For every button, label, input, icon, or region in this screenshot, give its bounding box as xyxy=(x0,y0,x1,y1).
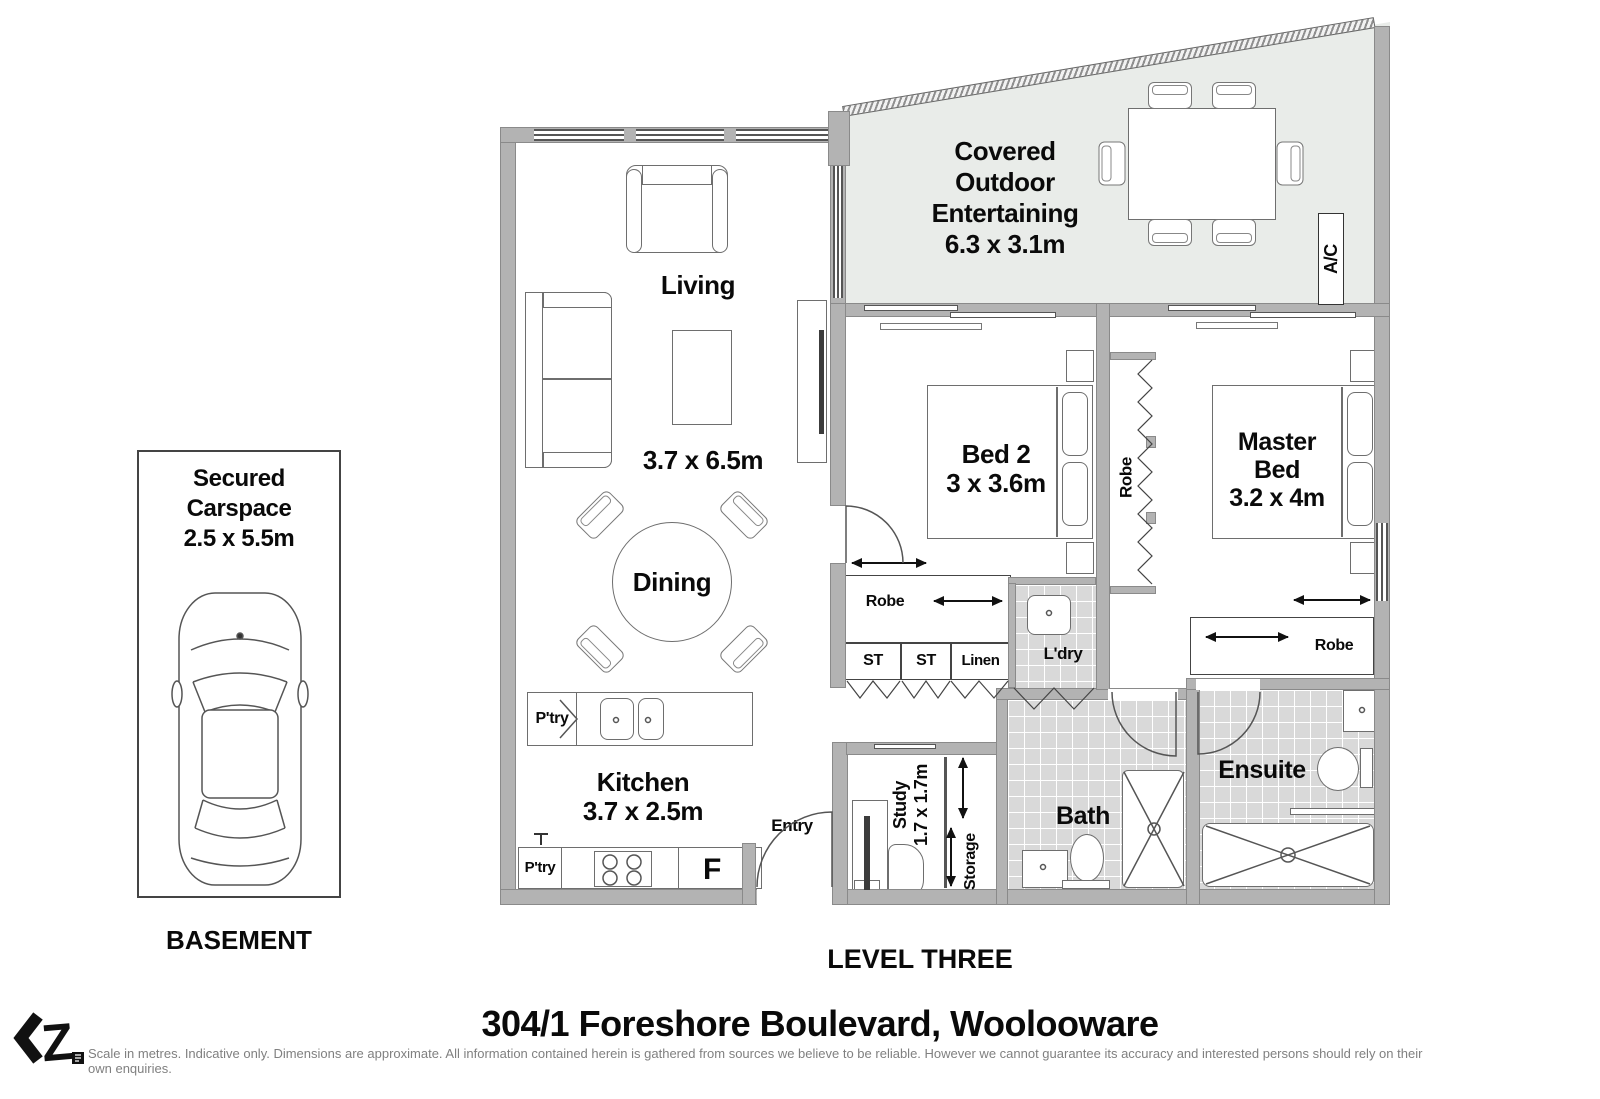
st-cell: ST xyxy=(901,643,951,680)
room-label-storage: Storage xyxy=(960,822,982,902)
bed2-sliding-door xyxy=(950,312,1056,318)
bedside-table xyxy=(1066,542,1094,574)
floorplan-page: { "page": { "address": "304/1 Foreshore … xyxy=(0,0,1600,1099)
car-top-view xyxy=(172,588,308,888)
fridge-cell: F xyxy=(678,847,746,889)
toilet-bowl xyxy=(1070,834,1104,882)
pantry-bottom-label: P'try xyxy=(519,860,561,877)
storage-arrow xyxy=(950,828,952,886)
outdoor-chair xyxy=(1148,219,1192,246)
st-cell: ST xyxy=(845,643,901,680)
window xyxy=(636,129,724,141)
car-mirror xyxy=(172,681,182,707)
room-label-outdoor: Covered Outdoor Entertaining 6.3 x 3.1m xyxy=(880,136,1130,260)
bathtub xyxy=(1202,823,1374,887)
master-dims: 3.2 x 4m xyxy=(1207,484,1347,512)
robe-hanging-rail xyxy=(1138,360,1152,584)
wall-corner-block xyxy=(828,111,850,166)
monitor xyxy=(864,816,870,890)
disclaimer-text: Scale in metres. Indicative only. Dimens… xyxy=(88,1046,1438,1076)
wall-living-right-mid xyxy=(830,303,846,506)
wall-left-exterior xyxy=(500,127,516,905)
pillow xyxy=(1347,462,1373,526)
outdoor-chair xyxy=(1212,82,1256,109)
laundry-sink xyxy=(1027,595,1071,635)
wall-ensuite-left xyxy=(1186,678,1200,905)
logo-letter: Z xyxy=(39,1013,76,1074)
master-window xyxy=(1376,523,1388,601)
outdoor-chair xyxy=(1277,142,1304,186)
master-line2: Bed xyxy=(1207,456,1347,484)
study-name: Study xyxy=(890,745,911,865)
study-dims: 1.7 x 1.7m xyxy=(911,745,932,865)
dining-chair xyxy=(574,489,626,541)
wall-niche-bottom-stub xyxy=(1110,586,1156,594)
bed2-name: Bed 2 xyxy=(926,440,1066,469)
room-dims-living: 3.7 x 6.5m xyxy=(623,446,783,475)
outdoor-line1: Covered xyxy=(880,136,1130,167)
car-antenna xyxy=(237,633,243,639)
window xyxy=(736,129,828,141)
window-pelmet xyxy=(880,323,982,330)
carspace-line1: Secured xyxy=(147,464,331,494)
master-sliding-door xyxy=(1250,312,1356,318)
ac-unit: A/C xyxy=(1318,213,1344,305)
wall-laundry-left xyxy=(1008,583,1016,688)
bedside-table xyxy=(1350,542,1376,574)
wall-robe-corridor xyxy=(1096,303,1110,690)
bed2-sliding-door xyxy=(864,305,958,311)
shower xyxy=(1122,770,1184,888)
niche-square xyxy=(1146,436,1156,448)
room-label-bed2: Bed 2 3 x 3.6m xyxy=(926,440,1066,498)
armchair-back xyxy=(642,165,712,185)
room-label-living: Living xyxy=(628,271,768,300)
armchair-arm xyxy=(712,169,728,253)
pantry-bottom-cell: P'try xyxy=(518,847,562,889)
outdoor-table xyxy=(1128,108,1276,220)
tap xyxy=(534,834,548,845)
wall-niche-top-stub xyxy=(1110,352,1156,360)
outdoor-line2: Outdoor xyxy=(880,167,1130,198)
room-label-dining: Dining xyxy=(612,568,732,597)
toilet-bowl xyxy=(1317,747,1359,791)
room-label-master: Master Bed 3.2 x 4m xyxy=(1207,428,1347,512)
carspace-label: Secured Carspace 2.5 x 5.5m xyxy=(147,464,331,554)
linen-cell: Linen xyxy=(951,643,1010,680)
wall-right-exterior xyxy=(1374,26,1390,905)
pillow xyxy=(1347,392,1373,456)
sofa-arm xyxy=(543,292,612,308)
robe-slider-arrow xyxy=(1206,636,1288,638)
kitchen-sink xyxy=(600,698,634,740)
wall-entry-study xyxy=(832,742,848,905)
carspace-line2: Carspace xyxy=(147,494,331,524)
door-arc-bed2 xyxy=(846,506,903,563)
pantry-top-label: P'try xyxy=(528,710,576,728)
level-label: LEVEL THREE xyxy=(745,944,1095,974)
agency-logo: Z xyxy=(14,1006,90,1070)
dining-chair xyxy=(574,623,626,675)
kitchen-sink xyxy=(638,698,664,740)
basement-label: BASEMENT xyxy=(137,926,341,955)
outdoor-line3: Entertaining xyxy=(880,198,1130,229)
bedside-table xyxy=(1350,350,1376,382)
coffee-table xyxy=(672,330,732,425)
room-label-ensuite: Ensuite xyxy=(1202,756,1322,784)
car-roof xyxy=(202,710,278,798)
address-title: 304/1 Foreshore Boulevard, Woolooware xyxy=(220,1004,1420,1044)
room-label-study: Study 1.7 x 1.7m xyxy=(890,745,934,865)
st2-label: ST xyxy=(902,652,950,670)
room-label-kitchen: Kitchen xyxy=(563,768,723,797)
sofa-cushion-line xyxy=(543,378,612,380)
robe-slider-arrow xyxy=(852,562,926,564)
dining-chair xyxy=(718,623,770,675)
linen-label: Linen xyxy=(952,653,1009,670)
toilet-tank xyxy=(1360,748,1373,788)
car-mirror xyxy=(298,681,308,707)
ensuite-door-gap xyxy=(1196,679,1260,690)
bedside-table xyxy=(1066,350,1094,382)
wall-bath-left xyxy=(996,688,1008,905)
logo-chevron xyxy=(21,1016,38,1060)
outdoor-chair xyxy=(1148,82,1192,109)
bath-door-gap xyxy=(1108,689,1178,700)
sofa-back xyxy=(525,292,543,468)
toilet-tank xyxy=(1062,880,1110,889)
shelf xyxy=(1290,808,1384,815)
balcony-door-window xyxy=(833,166,843,298)
outdoor-chair xyxy=(1212,219,1256,246)
cooktop xyxy=(594,851,652,887)
study-storage-divider xyxy=(944,757,947,888)
wall-living-right-lower xyxy=(830,563,846,688)
zigzag-st1 xyxy=(847,681,900,698)
robe-slider-arrow xyxy=(1294,599,1370,601)
storage-arrow xyxy=(962,758,964,818)
dining-chair xyxy=(718,489,770,541)
carspace-dims: 2.5 x 5.5m xyxy=(147,524,331,554)
room-label-ldry: L'dry xyxy=(1023,644,1103,663)
robe-bed2-label: Robe xyxy=(848,593,922,611)
window-pelmet xyxy=(1196,322,1278,329)
master-line1: Master xyxy=(1207,428,1347,456)
niche-square xyxy=(1146,512,1156,524)
outdoor-dims: 6.3 x 3.1m xyxy=(880,229,1130,260)
room-label-entry: Entry xyxy=(752,816,832,835)
tv xyxy=(819,330,824,434)
room-dims-kitchen: 3.7 x 2.5m xyxy=(563,797,723,826)
fridge-label: F xyxy=(679,853,745,887)
window xyxy=(534,129,624,141)
bed2-dims: 3 x 3.6m xyxy=(926,469,1066,498)
wall-bottom-exterior xyxy=(500,889,1390,905)
robe-corridor-label: Robe xyxy=(1115,436,1137,520)
st1-label: ST xyxy=(846,652,900,670)
robe-slider-arrow xyxy=(934,600,1002,602)
zigzag-st2 xyxy=(902,681,950,698)
sofa-arm xyxy=(543,452,612,468)
armchair-arm xyxy=(626,169,642,253)
pantry-top-cell: P'try xyxy=(527,692,577,746)
wall-kitchen-stub xyxy=(742,843,756,905)
entry-door-gap xyxy=(757,889,832,905)
wall-laundry-top xyxy=(1008,577,1096,585)
master-sliding-door xyxy=(1168,305,1256,311)
ac-label: A/C xyxy=(1319,214,1343,304)
room-label-bath: Bath xyxy=(1043,802,1123,830)
robe-master-label: Robe xyxy=(1298,637,1370,655)
